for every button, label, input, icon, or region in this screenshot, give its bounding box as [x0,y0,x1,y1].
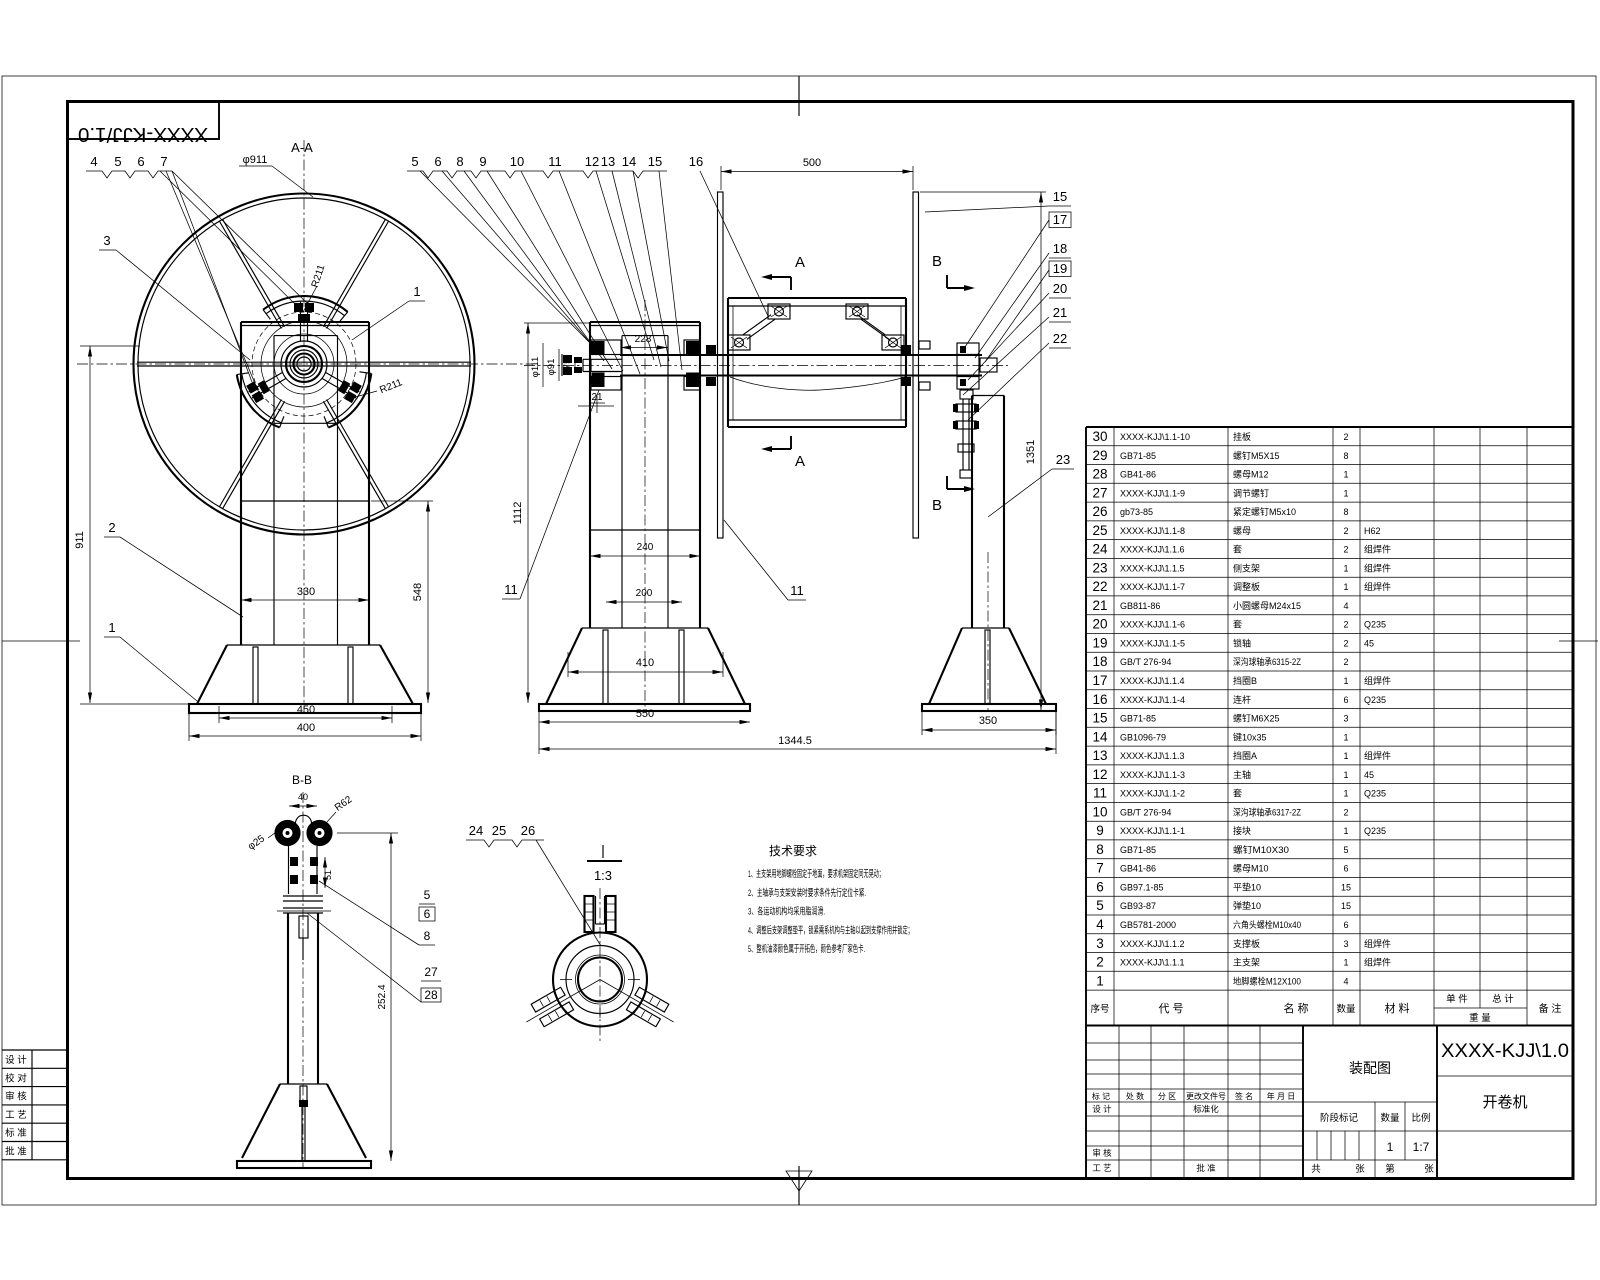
svg-text:校 对: 校 对 [5,1072,27,1084]
svg-text:XXXX-KJJ\1.1-9: XXXX-KJJ\1.1-9 [1120,488,1185,498]
svg-text:GB41-86: GB41-86 [1120,864,1156,874]
svg-text:1:7: 1:7 [1413,1140,1430,1154]
svg-text:21: 21 [1053,305,1067,320]
svg-text:组焊件: 组焊件 [1364,675,1391,686]
svg-text:3、各运动机构均采用脂润滑.: 3、各运动机构均采用脂润滑. [748,906,825,918]
svg-text:1: 1 [1343,676,1348,686]
svg-text:25: 25 [1092,523,1107,538]
svg-text:数量: 数量 [1380,1112,1400,1124]
svg-text:装配图: 装配图 [1349,1060,1391,1076]
svg-text:技术要求: 技术要求 [769,844,817,858]
svg-text:11: 11 [548,154,562,169]
svg-text:挡圈A: 挡圈A [1233,750,1257,761]
svg-text:11: 11 [790,583,804,598]
svg-text:13: 13 [601,154,615,169]
svg-text:11: 11 [1093,786,1107,801]
svg-text:XXXX-KJJ\1.1.1: XXXX-KJJ\1.1.1 [1120,958,1185,968]
svg-text:年 月 日: 年 月 日 [1267,1091,1295,1101]
svg-text:15: 15 [1341,901,1351,911]
svg-text:4: 4 [1343,601,1348,611]
svg-text:4、调整后支架调整垫平，锁紧需系机构与主轴以起到支撑作用并锁: 4、调整后支架调整垫平，锁紧需系机构与主轴以起到支撑作用并锁定； [748,924,913,936]
svg-text:330: 330 [297,586,315,598]
svg-text:XXXX-KJJ\1.1-10: XXXX-KJJ\1.1-10 [1120,432,1190,442]
svg-text:450: 450 [297,704,315,716]
svg-text:500: 500 [803,157,821,169]
svg-text:2: 2 [1343,432,1348,442]
svg-text:2: 2 [1096,955,1104,970]
svg-text:螺母: 螺母 [1233,526,1251,536]
svg-text:GB811-86: GB811-86 [1120,601,1160,611]
svg-text:6: 6 [137,154,144,169]
svg-text:8: 8 [456,154,463,169]
svg-text:911: 911 [74,531,86,549]
svg-text:1:3: 1:3 [594,868,612,883]
svg-text:数量: 数量 [1336,1003,1356,1015]
svg-text:25: 25 [492,823,506,838]
svg-text:第: 第 [1385,1163,1395,1175]
svg-text:22: 22 [1092,579,1107,594]
svg-text:材 料: 材 料 [1384,1001,1409,1015]
svg-text:550: 550 [636,708,654,720]
svg-text:4: 4 [90,154,97,169]
svg-text:26: 26 [521,823,535,838]
svg-text:套: 套 [1233,619,1242,630]
svg-text:16: 16 [1092,692,1107,707]
svg-text:9: 9 [479,154,486,169]
svg-text:15: 15 [648,154,662,169]
svg-text:φ91: φ91 [546,359,557,376]
svg-text:Q235: Q235 [1364,789,1386,799]
svg-text:XXXX-KJJ\1.0: XXXX-KJJ\1.0 [1441,1041,1569,1062]
svg-text:5: 5 [114,154,121,169]
svg-text:28: 28 [1092,467,1107,482]
svg-text:平垫10: 平垫10 [1233,882,1261,893]
svg-text:24: 24 [1092,542,1108,557]
svg-text:5、整机油漆颜色属于开拓色，颜色参考厂家色卡.: 5、整机油漆颜色属于开拓色，颜色参考厂家色卡. [748,943,865,955]
svg-text:φ75: φ75 [562,359,573,376]
svg-text:XXXX-KJJ\1.1-6: XXXX-KJJ\1.1-6 [1120,620,1185,630]
svg-text:GB1096-79: GB1096-79 [1120,732,1166,742]
svg-text:A-A: A-A [291,140,313,155]
svg-text:13: 13 [1092,748,1107,763]
svg-text:1: 1 [1343,789,1348,799]
svg-text:3: 3 [103,233,110,248]
svg-text:名 称: 名 称 [1283,1001,1308,1015]
svg-text:2、主轴承与支架安装时要求条件先行定位卡紧.: 2、主轴承与支架安装时要求条件先行定位卡紧. [748,887,866,899]
svg-text:1: 1 [1343,582,1348,592]
svg-text:XXXX-KJJ\1.1-5: XXXX-KJJ\1.1-5 [1120,639,1185,649]
svg-text:XXXX-KJJ\1.1-3: XXXX-KJJ\1.1-3 [1120,770,1185,780]
svg-text:1: 1 [1343,826,1348,836]
svg-text:XXXX-KJJ\1.1-8: XXXX-KJJ\1.1-8 [1120,526,1185,536]
svg-text:重 量: 重 量 [1469,1012,1491,1024]
svg-text:23: 23 [1092,560,1107,575]
svg-text:1351: 1351 [1025,440,1037,464]
svg-text:螺钉M5X15: 螺钉M5X15 [1233,451,1280,461]
svg-text:8: 8 [1343,451,1348,461]
svg-text:比例: 比例 [1411,1112,1430,1124]
svg-text:设 计: 设 计 [1092,1104,1112,1114]
svg-text:深沟球轴承6317-2Z: 深沟球轴承6317-2Z [1233,806,1301,817]
svg-text:20: 20 [1092,617,1107,632]
svg-text:10: 10 [1092,804,1107,819]
svg-text:挡圈B: 挡圈B [1233,675,1257,686]
svg-text:51: 51 [323,870,333,880]
svg-text:1: 1 [1343,488,1348,498]
svg-text:H62: H62 [1364,526,1381,536]
svg-text:螺母M10: 螺母M10 [1233,864,1269,874]
svg-text:14: 14 [1092,729,1108,744]
svg-text:标 记: 标 记 [1092,1091,1110,1101]
svg-text:2: 2 [1343,526,1348,536]
svg-text:2: 2 [1343,545,1348,555]
svg-text:φ911: φ911 [243,154,268,166]
svg-text:地脚螺栓M12X100: 地脚螺栓M12X100 [1233,975,1301,986]
svg-text:10: 10 [510,154,524,169]
svg-text:批 准: 批 准 [1196,1163,1216,1173]
svg-text:共: 共 [1311,1164,1321,1175]
svg-text:序号: 序号 [1090,1003,1109,1015]
svg-text:套: 套 [1233,544,1242,555]
svg-text:组焊件: 组焊件 [1364,581,1391,592]
svg-text:主轴: 主轴 [1233,769,1251,780]
svg-text:23: 23 [1056,452,1070,467]
svg-text:8: 8 [424,929,431,943]
svg-text:15: 15 [1341,883,1351,893]
svg-text:螺钉M6X25: 螺钉M6X25 [1233,714,1280,724]
svg-text:深沟球轴承6315-2Z: 深沟球轴承6315-2Z [1233,656,1301,667]
svg-text:1: 1 [413,284,420,299]
svg-text:240: 240 [637,542,654,553]
svg-text:GB93-87: GB93-87 [1120,901,1156,911]
svg-text:1、主支架用地脚螺栓固定于地面，要求机架固定同无晃动；: 1、主支架用地脚螺栓固定于地面，要求机架固定同无晃动； [748,868,884,880]
svg-text:252.4: 252.4 [377,984,388,1009]
svg-text:4: 4 [1096,917,1104,932]
svg-text:26: 26 [1092,504,1107,519]
svg-text:GB41-86: GB41-86 [1120,470,1156,480]
svg-text:16: 16 [689,154,703,169]
svg-text:GB5781-2000: GB5781-2000 [1120,920,1176,930]
svg-text:6: 6 [1343,920,1348,930]
svg-text:B: B [932,253,942,270]
svg-text:XXXX-KJJ\1.1-2: XXXX-KJJ\1.1-2 [1120,789,1185,799]
svg-text:Q235: Q235 [1364,826,1386,836]
svg-text:GB97.1-85: GB97.1-85 [1120,883,1164,893]
svg-text:1: 1 [1343,563,1348,573]
svg-text:1: 1 [1343,770,1348,780]
svg-text:2: 2 [108,520,115,535]
svg-text:2: 2 [1343,639,1348,649]
svg-text:7: 7 [160,154,167,169]
svg-text:小圆螺母M24x15: 小圆螺母M24x15 [1233,601,1301,611]
svg-text:19: 19 [1053,261,1067,276]
svg-text:组焊件: 组焊件 [1364,938,1391,949]
svg-text:代 号: 代 号 [1158,1002,1183,1015]
svg-text:17: 17 [1092,673,1107,688]
svg-text:GB71-85: GB71-85 [1120,714,1156,724]
svg-text:总 计: 总 计 [1492,993,1514,1005]
svg-text:XXXX-KJJ\1.1-1: XXXX-KJJ\1.1-1 [1120,826,1185,836]
svg-text:548: 548 [412,583,424,601]
svg-text:开卷机: 开卷机 [1482,1094,1527,1111]
svg-text:gb73-85: gb73-85 [1120,507,1153,517]
svg-text:XXXX-KJJ\1.1-4: XXXX-KJJ\1.1-4 [1120,695,1185,705]
svg-text:更改文件号: 更改文件号 [1186,1091,1226,1101]
svg-text:6: 6 [424,907,431,921]
svg-text:22: 22 [1053,331,1067,346]
svg-text:签 名: 签 名 [1235,1091,1253,1101]
svg-text:组焊件: 组焊件 [1364,750,1391,761]
svg-text:1: 1 [1343,751,1348,761]
svg-text:12: 12 [585,154,599,169]
svg-text:接块: 接块 [1233,825,1251,836]
svg-text:审 核: 审 核 [5,1091,27,1103]
svg-text:1: 1 [1096,973,1104,988]
svg-text:弹垫10: 弹垫10 [1233,900,1261,911]
svg-text:审 核: 审 核 [1092,1148,1112,1158]
svg-text:12: 12 [1092,767,1107,782]
svg-text:5: 5 [1096,898,1104,913]
svg-text:6: 6 [1343,695,1348,705]
svg-text:组焊件: 组焊件 [1364,562,1391,573]
svg-text:29: 29 [1092,448,1107,463]
svg-text:400: 400 [297,722,315,734]
svg-text:6: 6 [1343,864,1348,874]
svg-text:φ111: φ111 [530,357,541,378]
svg-text:6: 6 [1096,880,1104,895]
svg-text:六角头螺栓M10x40: 六角头螺栓M10x40 [1233,919,1301,930]
svg-text:A: A [795,453,805,470]
svg-text:2: 2 [1343,807,1348,817]
svg-text:1: 1 [1343,470,1348,480]
svg-text:18: 18 [1053,241,1067,256]
svg-text:张: 张 [1355,1164,1365,1175]
svg-text:挂板: 挂板 [1233,431,1251,442]
svg-text:8: 8 [1096,842,1104,857]
svg-text:XXXX-KJJ\1.1.2: XXXX-KJJ\1.1.2 [1120,939,1185,949]
svg-text:2: 2 [1343,657,1348,667]
svg-text:标 准: 标 准 [5,1127,27,1139]
svg-text:GB/T 276-94: GB/T 276-94 [1120,657,1171,667]
svg-text:调整板: 调整板 [1233,581,1260,592]
svg-text:XXXX-KJJ\1.1.4: XXXX-KJJ\1.1.4 [1120,676,1185,686]
svg-text:3: 3 [1343,714,1348,724]
svg-text:15: 15 [1092,711,1107,726]
svg-text:标准化: 标准化 [1193,1104,1219,1114]
svg-text:45: 45 [1364,639,1374,649]
svg-text:锁轴: 锁轴 [1233,638,1251,649]
svg-text:1: 1 [1343,958,1348,968]
svg-text:连杆: 连杆 [1233,694,1251,705]
svg-text:8: 8 [1343,507,1348,517]
svg-text:3: 3 [1096,936,1104,951]
svg-text:处 数: 处 数 [1126,1091,1144,1101]
svg-text:40: 40 [298,792,308,802]
svg-text:14: 14 [622,154,636,169]
svg-text:2: 2 [1343,620,1348,630]
svg-text:27: 27 [424,965,438,979]
svg-text:350: 350 [979,715,997,727]
svg-text:主支架: 主支架 [1233,957,1260,968]
svg-text:螺母M12: 螺母M12 [1233,470,1269,480]
svg-text:紧定螺钉M5x10: 紧定螺钉M5x10 [1233,506,1296,517]
svg-text:阶段标记: 阶段标记 [1320,1112,1359,1124]
svg-text:1: 1 [108,620,115,635]
svg-text:4: 4 [1343,976,1348,986]
svg-text:18: 18 [1092,654,1107,669]
svg-text:侧支架: 侧支架 [1233,562,1260,573]
svg-text:5: 5 [424,888,431,902]
svg-text:30: 30 [1092,429,1107,444]
svg-text:XXXX-KJJ\1.1.5: XXXX-KJJ\1.1.5 [1120,563,1185,573]
svg-text:GB71-85: GB71-85 [1120,845,1156,855]
svg-text:1: 1 [1387,1140,1394,1154]
svg-text:XXXX-KJJ/1.0: XXXX-KJJ/1.0 [78,123,208,145]
svg-text:3: 3 [1343,939,1348,949]
svg-text:20: 20 [1053,281,1067,296]
svg-text:1112: 1112 [512,502,524,525]
svg-text:6: 6 [434,154,441,169]
svg-text:5: 5 [411,154,418,169]
svg-text:设 计: 设 计 [5,1054,27,1066]
svg-text:支撑板: 支撑板 [1233,938,1260,949]
svg-text:组焊件: 组焊件 [1364,957,1391,968]
svg-text:27: 27 [1092,485,1107,500]
svg-text:21: 21 [1092,598,1107,613]
svg-text:24: 24 [469,823,483,838]
svg-text:批 准: 批 准 [5,1146,27,1158]
svg-text:15: 15 [1053,189,1067,204]
svg-text:键10x35: 键10x35 [1233,731,1267,742]
svg-text:7: 7 [1096,861,1104,876]
svg-text:9: 9 [1096,823,1104,838]
svg-text:工 艺: 工 艺 [5,1110,27,1121]
svg-text:螺钉M10X30: 螺钉M10X30 [1233,845,1289,855]
svg-text:Q235: Q235 [1364,620,1386,630]
svg-text:B: B [932,497,942,514]
svg-text:A: A [795,254,805,271]
svg-text:200: 200 [636,588,653,599]
svg-text:XXXX-KJJ\1.1.6: XXXX-KJJ\1.1.6 [1120,545,1185,555]
svg-text:5: 5 [1343,845,1348,855]
svg-text:1344.5: 1344.5 [778,735,812,747]
svg-text:工 艺: 工 艺 [1092,1163,1111,1173]
svg-text:单 件: 单 件 [1446,993,1468,1005]
svg-text:45: 45 [1364,770,1374,780]
svg-text:19: 19 [1092,636,1107,651]
svg-text:17: 17 [1053,212,1067,227]
svg-text:张: 张 [1424,1164,1434,1175]
svg-text:套: 套 [1233,788,1242,799]
svg-text:1: 1 [1343,732,1348,742]
svg-text:GB/T 276-94: GB/T 276-94 [1120,807,1171,817]
svg-text:410: 410 [636,657,654,669]
svg-text:XXXX-KJJ\1.1-7: XXXX-KJJ\1.1-7 [1120,582,1185,592]
svg-text:组焊件: 组焊件 [1364,544,1391,555]
svg-text:XXXX-KJJ\1.1.3: XXXX-KJJ\1.1.3 [1120,751,1185,761]
svg-text:GB71-85: GB71-85 [1120,451,1156,461]
svg-text:分 区: 分 区 [1158,1092,1176,1101]
svg-text:11: 11 [504,582,518,597]
svg-text:备 注: 备 注 [1539,1002,1562,1015]
svg-text:B-B: B-B [292,773,312,787]
svg-text:28: 28 [424,988,438,1002]
svg-text:调节螺钉: 调节螺钉 [1233,488,1269,498]
svg-text:Q235: Q235 [1364,695,1386,705]
